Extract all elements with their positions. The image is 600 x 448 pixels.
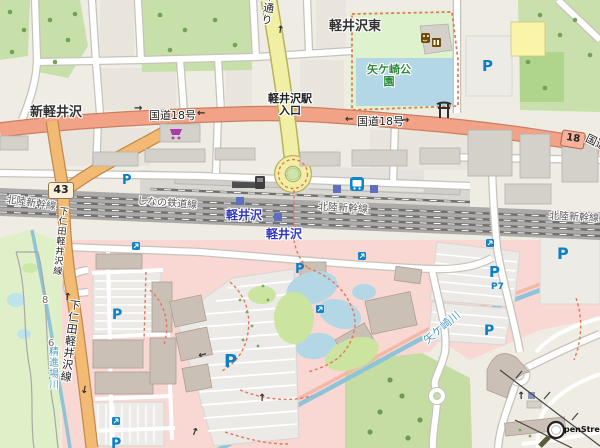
route-18-shield: 18 [560,129,586,150]
rotary-island [287,168,299,180]
map-canvas[interactable]: 軽井沢東 新軽井沢 矢ケ崎公 園 → 国道18号 ← ← 国道18号 → 軽井沢… [0,0,600,448]
bus-station-icon [350,177,364,191]
theatre-icon [421,33,430,43]
station-poi-icon [255,176,265,189]
map-geometry [0,0,600,448]
museum-icon [432,38,441,47]
yellow-building [511,22,545,56]
route-43-shield: 43 [48,182,74,199]
